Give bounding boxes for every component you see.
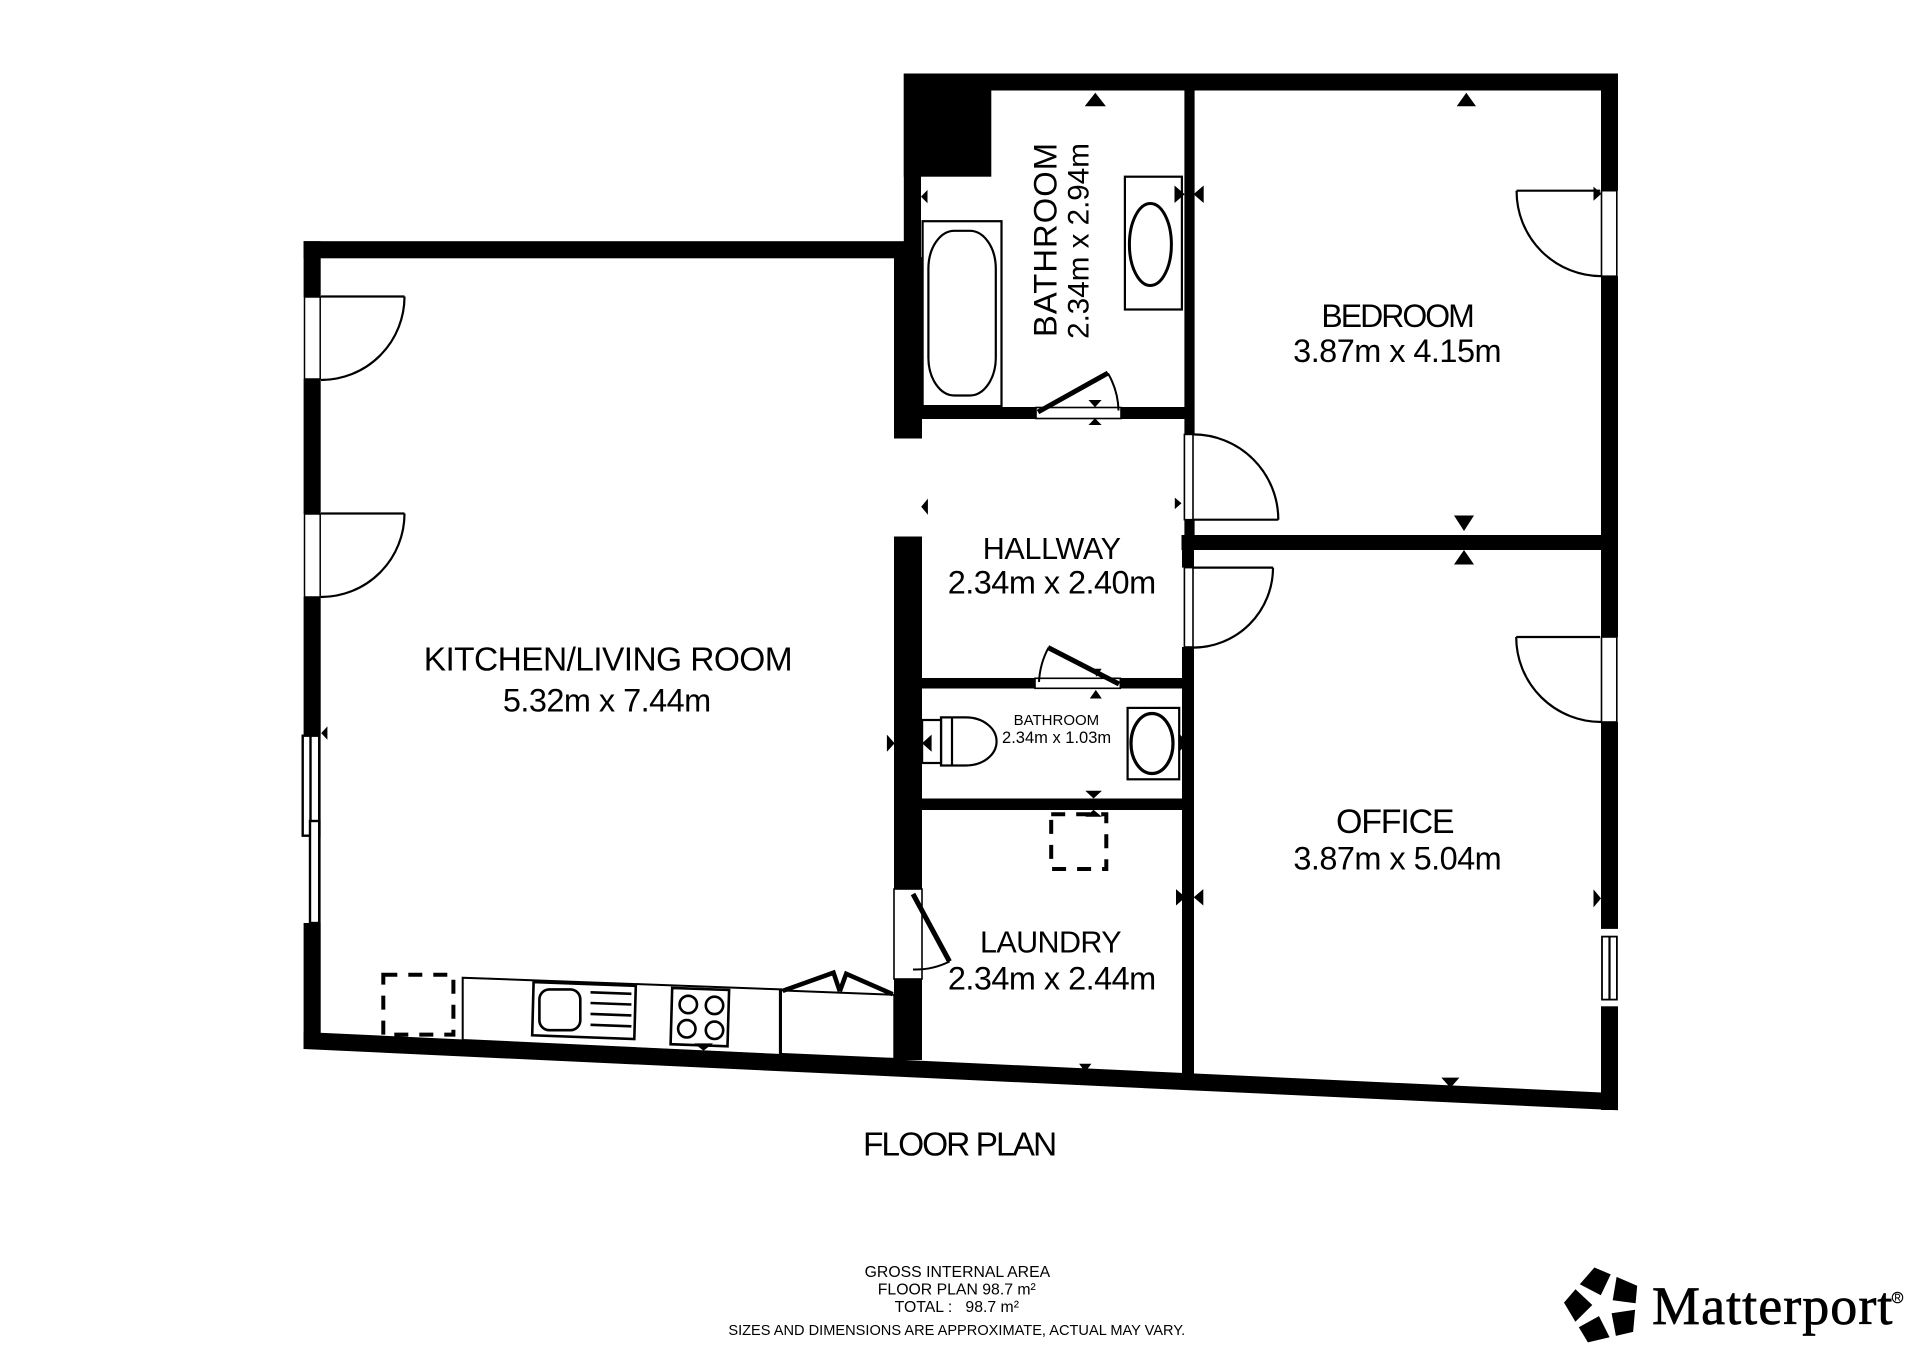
svg-text:GROSS INTERNAL AREA: GROSS INTERNAL AREA <box>865 1264 1051 1281</box>
svg-text:3.87m x 5.04m: 3.87m x 5.04m <box>1293 841 1501 877</box>
svg-text:BEDROOM: BEDROOM <box>1321 298 1473 334</box>
svg-text:2.34m x 2.94m: 2.34m x 2.94m <box>1062 143 1095 339</box>
svg-text:SIZES AND DIMENSIONS ARE APPRO: SIZES AND DIMENSIONS ARE APPROXIMATE, AC… <box>728 1323 1185 1339</box>
svg-text:5.32m x 7.44m: 5.32m x 7.44m <box>503 683 711 719</box>
svg-text:FLOOR PLAN 98.7 m²: FLOOR PLAN 98.7 m² <box>878 1282 1036 1299</box>
svg-text:BATHROOM: BATHROOM <box>1014 712 1100 729</box>
svg-text:2.34m x 1.03m: 2.34m x 1.03m <box>1002 729 1111 747</box>
svg-text:2.34m x 2.44m: 2.34m x 2.44m <box>948 961 1156 997</box>
svg-text:3.87m x 4.15m: 3.87m x 4.15m <box>1293 333 1501 369</box>
svg-text:Matterport: Matterport <box>1652 1276 1893 1336</box>
svg-text:2.34m x 2.40m: 2.34m x 2.40m <box>948 565 1156 601</box>
svg-text:TOTAL : 98.7 m²: TOTAL : 98.7 m² <box>895 1299 1019 1316</box>
svg-text:FLOOR PLAN: FLOOR PLAN <box>863 1127 1055 1164</box>
svg-text:HALLWAY: HALLWAY <box>983 532 1121 566</box>
svg-text:BATHROOM: BATHROOM <box>1026 142 1063 337</box>
svg-text:OFFICE: OFFICE <box>1336 803 1454 841</box>
svg-text:LAUNDRY: LAUNDRY <box>980 926 1121 960</box>
svg-text:KITCHEN/LIVING ROOM: KITCHEN/LIVING ROOM <box>424 642 792 679</box>
